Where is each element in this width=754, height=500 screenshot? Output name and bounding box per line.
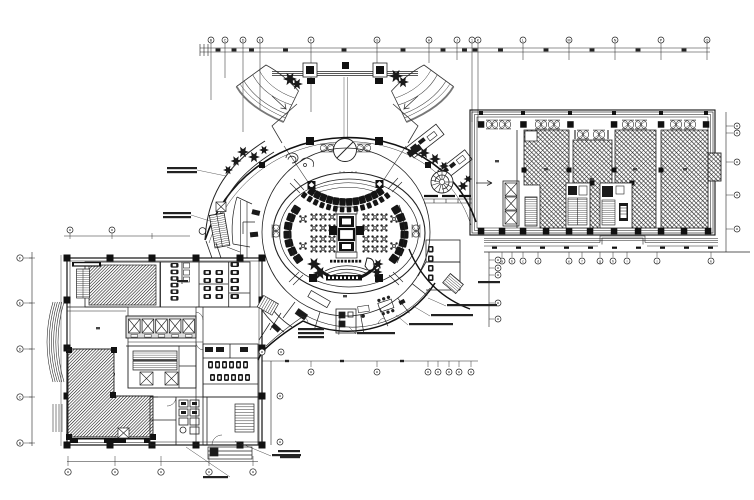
svg-text:C: C xyxy=(19,395,22,399)
svg-text:D: D xyxy=(19,347,22,351)
svg-text:G: G xyxy=(376,38,379,42)
svg-text:k: k xyxy=(710,259,712,263)
svg-text:J: J xyxy=(456,38,458,42)
svg-text:b: b xyxy=(511,259,513,263)
svg-text:d: d xyxy=(537,259,539,263)
svg-text:e: e xyxy=(568,259,570,263)
svg-text:D: D xyxy=(242,38,245,42)
svg-text:c: c xyxy=(522,259,524,263)
svg-text:L: L xyxy=(522,38,524,42)
svg-text:1: 1 xyxy=(471,38,473,42)
svg-text:C: C xyxy=(224,38,227,42)
svg-text:g: g xyxy=(599,259,601,263)
svg-text:Q: Q xyxy=(706,38,709,42)
svg-text:j: j xyxy=(656,259,658,263)
svg-text:M: M xyxy=(568,38,571,42)
svg-text:H: H xyxy=(428,38,431,42)
svg-text:N: N xyxy=(614,38,617,42)
svg-text:f: f xyxy=(582,259,583,263)
svg-text:h: h xyxy=(612,259,614,263)
